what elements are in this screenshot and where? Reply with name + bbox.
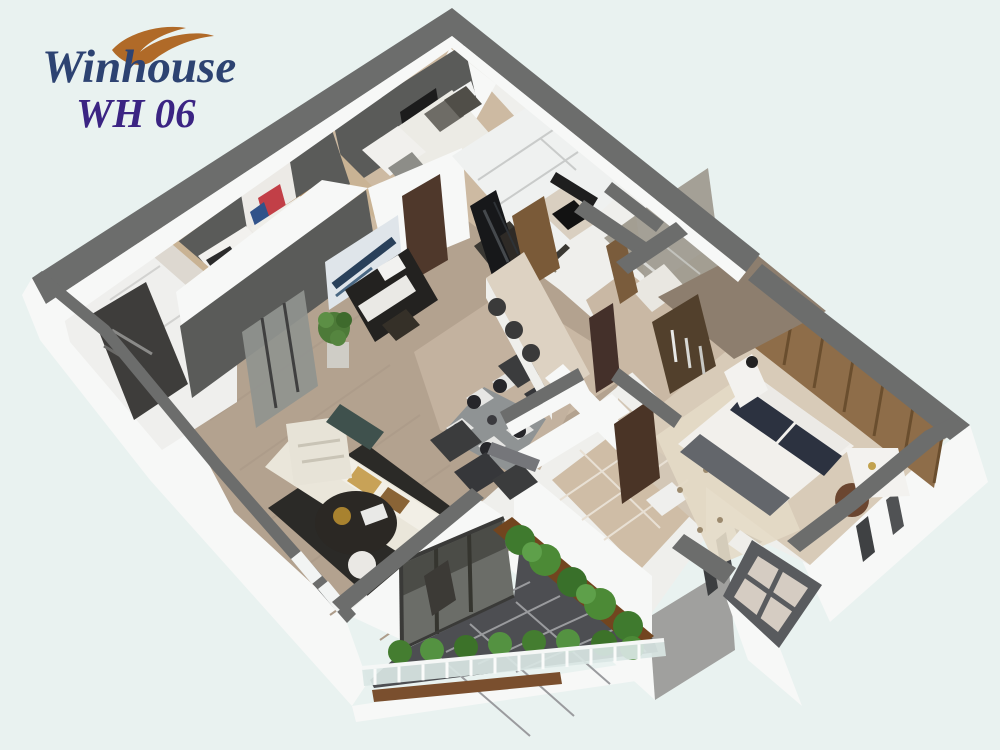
svg-text:Winhouse: Winhouse xyxy=(42,41,236,93)
svg-text:WH 06: WH 06 xyxy=(76,90,196,136)
